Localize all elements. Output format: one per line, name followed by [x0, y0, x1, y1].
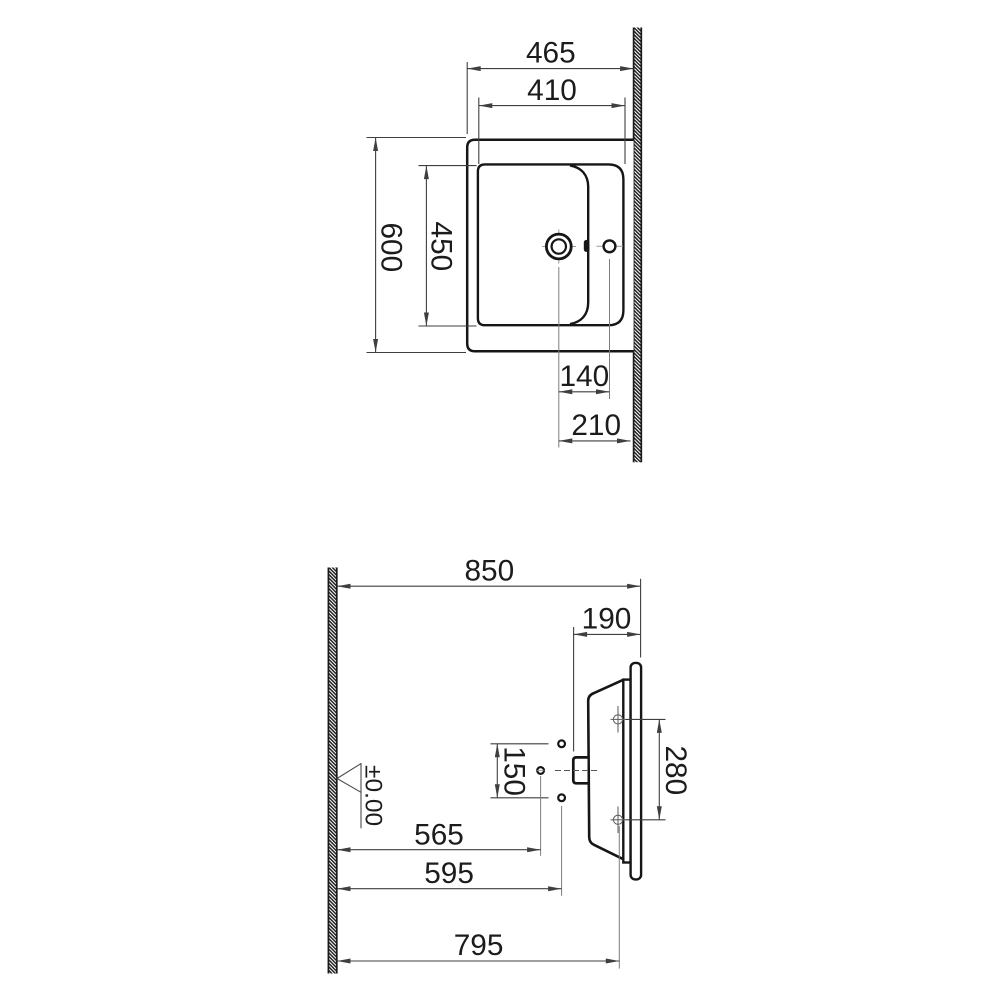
svg-text:±0.00: ±0.00	[360, 765, 387, 826]
svg-text:595: 595	[424, 857, 474, 890]
svg-text:150: 150	[498, 746, 531, 796]
svg-text:410: 410	[527, 74, 577, 107]
svg-text:795: 795	[454, 929, 504, 962]
svg-text:850: 850	[464, 554, 514, 587]
svg-text:190: 190	[582, 602, 632, 635]
svg-text:565: 565	[414, 819, 464, 852]
svg-text:140: 140	[559, 360, 609, 393]
svg-text:600: 600	[375, 222, 408, 272]
svg-text:465: 465	[526, 36, 576, 69]
svg-text:450: 450	[425, 222, 458, 272]
svg-text:280: 280	[659, 745, 692, 795]
svg-text:210: 210	[571, 409, 621, 442]
